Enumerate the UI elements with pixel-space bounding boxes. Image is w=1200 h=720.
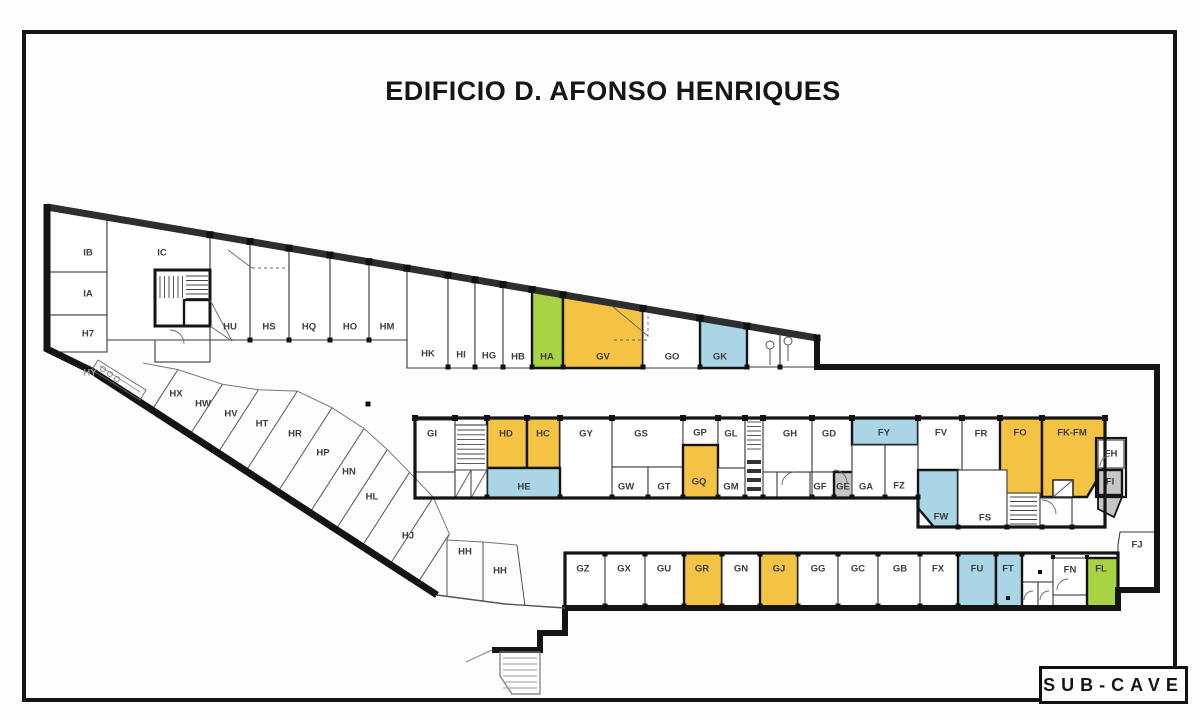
- gray-wedge: [1098, 497, 1122, 517]
- wall-column: [1038, 570, 1042, 574]
- wall-column: [715, 415, 721, 421]
- room-HD: [487, 418, 527, 468]
- wall-column: [720, 552, 725, 557]
- room-label-FJ: FJ: [1131, 540, 1142, 551]
- room-label-HS: HS: [262, 322, 275, 333]
- room-label-GT: GT: [657, 482, 670, 493]
- wall-column: [558, 495, 563, 500]
- room-label-HG: HG: [482, 351, 496, 362]
- wall-column: [207, 231, 214, 238]
- wall-column: [484, 415, 490, 421]
- wall-column: [761, 495, 766, 500]
- wall-column: [796, 552, 801, 557]
- wall-column: [366, 258, 373, 265]
- wall-column: [956, 552, 961, 557]
- wall-column: [916, 495, 921, 500]
- wall-column: [682, 552, 687, 557]
- room-GH: [763, 418, 812, 472]
- wall-column: [603, 552, 608, 557]
- wall-column: [876, 552, 881, 557]
- wall-column: [328, 338, 333, 343]
- wall-column: [524, 415, 530, 421]
- wall-column: [643, 604, 648, 609]
- wall-column: [560, 291, 567, 298]
- wall-column: [758, 604, 763, 609]
- wall-column: [603, 604, 608, 609]
- room-FV: [918, 418, 962, 470]
- room-label-FN: FN: [1064, 565, 1077, 576]
- wall-column: [1005, 525, 1010, 530]
- wall-column: [500, 281, 507, 288]
- boundary-thin: [437, 595, 565, 608]
- room-label-HR: HR: [288, 429, 302, 440]
- wall-column: [287, 338, 292, 343]
- room-label-GO: GO: [665, 352, 680, 363]
- room-label-GF: GF: [813, 482, 826, 493]
- wall-column: [956, 604, 961, 609]
- room-label-GG: GG: [811, 564, 826, 575]
- room-label-FV: FV: [935, 428, 948, 439]
- wall-column: [744, 323, 751, 330]
- wall-column: [850, 495, 855, 500]
- wall-column: [832, 495, 837, 500]
- wall-column: [918, 604, 923, 609]
- wall-column: [758, 552, 763, 557]
- room-label-HE: HE: [517, 482, 530, 493]
- room-label-HQ: HQ: [302, 322, 316, 333]
- room-label-FL: FL: [1095, 564, 1107, 575]
- room-GD: [812, 418, 852, 472]
- room-label-HJ: HJ: [402, 531, 414, 542]
- floor-label: SUB-CAVE: [1043, 675, 1184, 696]
- wall-column: [915, 415, 921, 421]
- wall-column: [760, 415, 766, 421]
- room-HC: [527, 418, 560, 468]
- wall-column: [247, 238, 254, 245]
- room-label-HW: HW: [195, 399, 211, 410]
- wall-column: [997, 415, 1003, 421]
- wall-column: [561, 365, 566, 370]
- wall-column: [366, 402, 371, 407]
- wall-column: [1039, 415, 1045, 421]
- wall-column: [876, 604, 881, 609]
- wall-column: [716, 495, 721, 500]
- drawing-sheet: EDIFICIO D. AFONSO HENRIQUES IBIAH7HYICH…: [0, 0, 1200, 720]
- floor-label-box: SUB-CAVE: [1039, 666, 1188, 704]
- room-GQ: [683, 445, 718, 498]
- wall-column: [1051, 555, 1055, 559]
- room-label-HU: HU: [223, 322, 237, 333]
- room-GC: [838, 553, 878, 608]
- wall-column: [445, 272, 452, 279]
- room-label-FO: FO: [1013, 428, 1026, 439]
- wall-column: [956, 525, 961, 530]
- wall-column: [810, 495, 815, 500]
- room-label-HC: HC: [536, 429, 550, 440]
- room-label-GM: GM: [723, 482, 738, 493]
- wall-column: [959, 415, 965, 421]
- wall-column: [1085, 555, 1089, 559]
- wall-column: [682, 604, 687, 609]
- room-label-HI: HI: [456, 350, 466, 361]
- room-GB: [878, 553, 920, 608]
- room-label-FZ: FZ: [893, 481, 905, 492]
- room-label-GD: GD: [822, 429, 836, 440]
- wall-column: [849, 415, 855, 421]
- wall-column: [641, 365, 646, 370]
- wall-column: [404, 265, 411, 272]
- room-label-HB: HB: [511, 352, 525, 363]
- wall-column: [681, 495, 686, 500]
- room-label-HY: HY: [83, 368, 97, 379]
- room-label-FY: FY: [878, 428, 891, 439]
- room-label-HH-2: HH: [493, 566, 507, 577]
- room-label-GK: GK: [713, 352, 727, 363]
- wall-column: [529, 286, 536, 293]
- wall-column: [796, 604, 801, 609]
- wall-column: [412, 415, 418, 421]
- wall-column: [248, 338, 253, 343]
- room-label-GW: GW: [618, 482, 634, 493]
- stair-bar: [747, 478, 761, 482]
- room-label-HK: HK: [421, 349, 435, 360]
- wall-column: [530, 365, 535, 370]
- wall-column: [994, 604, 999, 609]
- room-label-GN: GN: [734, 564, 748, 575]
- room-label-HT: HT: [256, 419, 269, 430]
- wall-column: [609, 415, 615, 421]
- garage-divider: [310, 428, 364, 512]
- wall-column: [745, 365, 750, 370]
- wall-column: [610, 495, 615, 500]
- room-GS: [612, 418, 683, 467]
- wall-column: [697, 315, 704, 322]
- room-label-FR: FR: [975, 429, 988, 440]
- wall-column: [473, 365, 478, 370]
- stair-bar: [747, 460, 761, 464]
- room-label-FU: FU: [971, 564, 984, 575]
- hh-divider: [517, 545, 525, 606]
- wall-column: [814, 334, 821, 341]
- room-label-FK-FM: FK-FM: [1057, 428, 1087, 439]
- room-GZ: [565, 553, 605, 608]
- room-label-FH: FH: [1105, 449, 1118, 460]
- room-label-FS: FS: [979, 513, 991, 524]
- room-label-IB: IB: [83, 248, 93, 259]
- wall-column: [778, 365, 783, 370]
- room-label-GE: GE: [836, 482, 850, 493]
- staircase-gh: [745, 418, 763, 498]
- room-label-H7: H7: [82, 329, 94, 340]
- stair-bar: [747, 469, 761, 473]
- wall-column: [640, 305, 647, 312]
- wall-column: [680, 415, 686, 421]
- room-label-GP: GP: [693, 428, 707, 439]
- wall-column: [809, 415, 815, 421]
- wall-column: [367, 338, 372, 343]
- room-label-GJ: GJ: [773, 564, 786, 575]
- room-GL: [718, 418, 745, 468]
- wall-column: [1102, 415, 1108, 421]
- wc-cell-2: [1038, 582, 1053, 608]
- room-FU: [958, 553, 996, 608]
- room-label-GQ: GQ: [692, 477, 707, 488]
- room-label-FT: FT: [1002, 564, 1014, 575]
- stair-bar: [747, 487, 761, 491]
- room-label-GC: GC: [851, 564, 865, 575]
- wall-column: [557, 415, 563, 421]
- garage-divider: [218, 390, 259, 453]
- room-label-HV: HV: [224, 409, 238, 420]
- wall-column: [1006, 596, 1010, 600]
- wall-column: [836, 552, 841, 557]
- room-label-GL: GL: [724, 429, 737, 440]
- wall-column: [742, 415, 748, 421]
- room-GU: [645, 553, 684, 608]
- room-FX: [920, 553, 958, 608]
- room-label-GY: GY: [579, 429, 593, 440]
- staircase-fs: [1007, 493, 1040, 527]
- room-label-HM: HM: [380, 322, 395, 333]
- room-label-HP: HP: [316, 448, 330, 459]
- room-label-GZ: GZ: [576, 564, 589, 575]
- room-label-FX: FX: [932, 564, 945, 575]
- wall-column: [1070, 525, 1075, 530]
- wall-column: [646, 495, 651, 500]
- room-FR: [962, 418, 1000, 470]
- room-label-GR: GR: [695, 564, 709, 575]
- wall-column: [883, 495, 888, 500]
- room-label-GA: GA: [859, 482, 873, 493]
- room-label-GI: GI: [427, 429, 437, 440]
- room-GN: [722, 553, 760, 608]
- room-GX: [605, 553, 645, 608]
- floor-plan-svg: IBIAH7HYICHUHSHQHOHMHKHIHGHBHAGVGOGKHXHW…: [0, 0, 1200, 720]
- room-label-GX: GX: [617, 564, 631, 575]
- wall-column: [698, 365, 703, 370]
- garage-divider: [418, 534, 449, 583]
- room-label-GS: GS: [634, 429, 648, 440]
- room-IA: [47, 272, 107, 315]
- room-label-FW: FW: [934, 512, 949, 523]
- wall-column: [472, 276, 479, 283]
- wall-column: [994, 552, 999, 557]
- room-GR: [684, 553, 722, 608]
- wall-column: [1020, 552, 1025, 557]
- room-label-GV: GV: [596, 352, 610, 363]
- room-label-HN: HN: [342, 467, 356, 478]
- room-label-IC: IC: [157, 248, 167, 259]
- room-label-FI: FI: [1106, 477, 1114, 488]
- room-label-HX: HX: [169, 389, 183, 400]
- wall-column: [643, 552, 648, 557]
- wall-column: [743, 495, 748, 500]
- wall-column: [327, 252, 334, 259]
- room-label-HL: HL: [366, 492, 379, 503]
- room-label-HO: HO: [343, 322, 357, 333]
- room-GJ: [760, 553, 798, 608]
- wall-column: [286, 245, 293, 252]
- wc-cell-1: [1022, 582, 1038, 608]
- garage-divider: [336, 450, 387, 530]
- room-label-GH: GH: [783, 429, 797, 440]
- wall-column: [446, 365, 451, 370]
- wall-column: [836, 604, 841, 609]
- wall-column: [485, 495, 490, 500]
- room-label-GU: GU: [657, 564, 671, 575]
- room-label-IA: IA: [83, 289, 93, 300]
- wall-column: [501, 365, 506, 370]
- wall-column: [720, 604, 725, 609]
- wall-column: [1040, 525, 1045, 530]
- wall-column: [918, 552, 923, 557]
- room-GG: [798, 553, 838, 608]
- room-label-HH-1: HH: [458, 547, 472, 558]
- room-H7: [47, 315, 107, 352]
- room-label-HA: HA: [540, 352, 554, 363]
- room-label-HD: HD: [499, 429, 513, 440]
- wall-column: [452, 415, 458, 421]
- ramp-line: [466, 650, 492, 662]
- room-label-GB: GB: [893, 564, 907, 575]
